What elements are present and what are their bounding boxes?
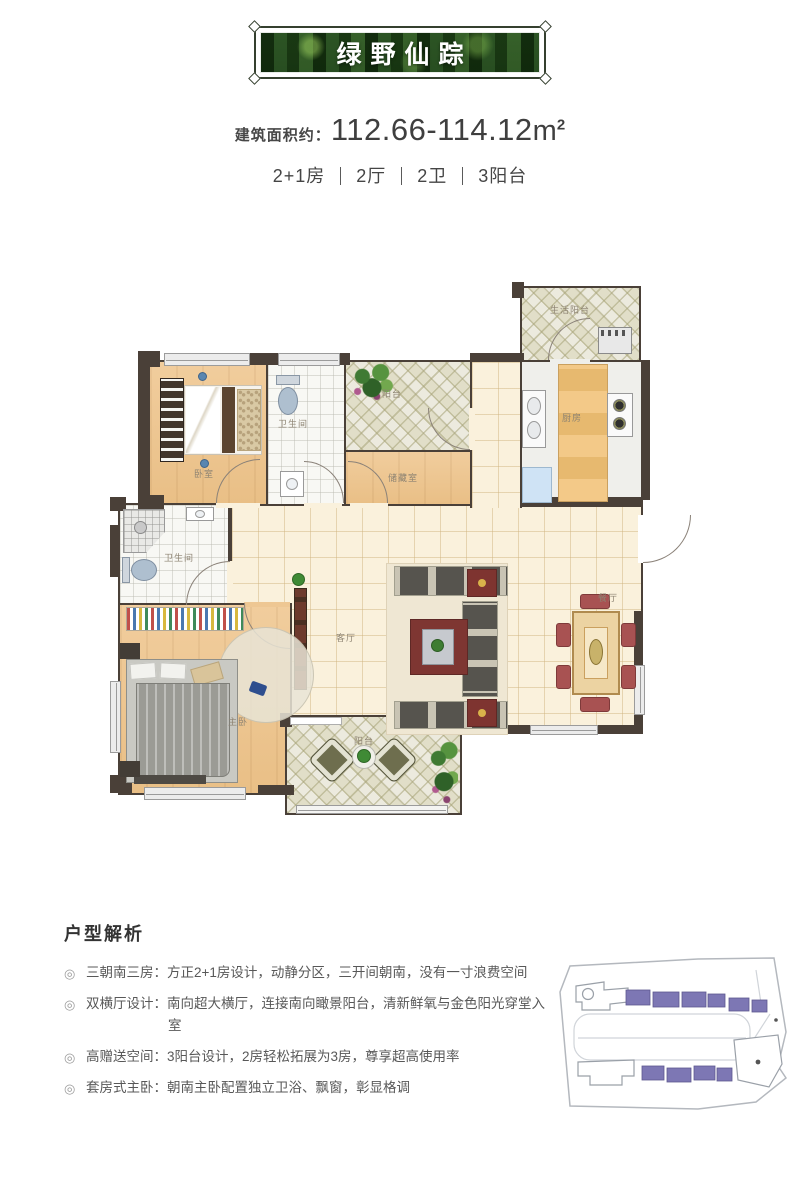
room-label-storage: 储藏室 bbox=[388, 471, 418, 484]
built-area-unit: m2 bbox=[533, 115, 566, 148]
kitchen-counter bbox=[558, 364, 608, 502]
spec-halls: 2厅 bbox=[340, 167, 401, 185]
banner-corner-ornament bbox=[248, 20, 261, 33]
spec-balconies: 3阳台 bbox=[462, 167, 542, 185]
dining-centerpiece bbox=[589, 639, 603, 665]
built-area-line: 建筑面积约： 112.66-114.12 m2 bbox=[0, 112, 800, 148]
wall-segment bbox=[258, 785, 294, 795]
stove-burner bbox=[613, 417, 626, 430]
room-label-balcony-top: 阳台 bbox=[382, 387, 402, 400]
room-label-kitchen: 厨房 bbox=[562, 411, 582, 424]
bed-headboard bbox=[222, 387, 235, 453]
bed-drape bbox=[136, 683, 230, 777]
sliding-door bbox=[290, 717, 342, 725]
analysis-item: ◎ 双横厅设计：南向超大横厅，连接南向瞰景阳台，清新鲜氧与金色阳光穿堂入室 bbox=[64, 993, 546, 1037]
table-plant bbox=[431, 639, 444, 652]
room-corridor bbox=[470, 360, 522, 508]
toilet-icon bbox=[122, 557, 130, 583]
door-gap bbox=[350, 503, 388, 508]
project-title: 绿野仙踪 bbox=[327, 35, 472, 71]
site-boundary bbox=[560, 958, 786, 1109]
site-map bbox=[548, 950, 793, 1122]
analysis-text: 套房式主卧：朝南主卧配置独立卫浴、飘窗，彰显格调 bbox=[86, 1077, 546, 1099]
wall-segment bbox=[110, 525, 120, 577]
bed-duvet bbox=[186, 387, 220, 453]
window bbox=[530, 725, 598, 735]
door-gap bbox=[304, 503, 342, 508]
room-label-dining: 餐厅 bbox=[598, 591, 618, 604]
spec-rooms: 2+1房 bbox=[258, 167, 341, 185]
door-arc-entry bbox=[643, 515, 691, 563]
wall-segment bbox=[138, 495, 164, 509]
dining-chair bbox=[556, 623, 571, 647]
sink-bowl bbox=[527, 421, 541, 439]
title-banner: 绿野仙踪 bbox=[254, 26, 546, 79]
built-area-value: 112.66-114.12 bbox=[331, 112, 533, 148]
bullet-icon: ◎ bbox=[64, 962, 86, 984]
side-table bbox=[467, 569, 497, 597]
washer-dials bbox=[601, 330, 629, 336]
wardrobe bbox=[160, 378, 184, 462]
analysis-list: ◎ 三朝南三房：方正2+1房设计，动静分区，三开间朝南，没有一寸浪费空间 ◎ 双… bbox=[64, 962, 546, 1099]
window bbox=[164, 353, 250, 366]
bedside-lamp bbox=[198, 372, 207, 381]
fridge-icon bbox=[522, 467, 552, 503]
sink-bowl bbox=[527, 397, 541, 415]
wall-segment bbox=[641, 360, 650, 500]
analysis-title: 户型解析 bbox=[64, 920, 546, 946]
sink-basin bbox=[195, 510, 205, 518]
nightstand bbox=[120, 643, 140, 659]
built-area-label: 建筑面积约： bbox=[235, 124, 331, 145]
room-label-bedroom2: 卧室 bbox=[194, 467, 214, 480]
room-label-living: 客厅 bbox=[336, 631, 356, 644]
dining-chair bbox=[556, 665, 571, 689]
sink-basin bbox=[286, 478, 298, 490]
banner-corner-ornament bbox=[539, 72, 552, 85]
bed-blanket bbox=[237, 389, 261, 451]
pillow bbox=[160, 662, 187, 679]
analysis-section: 户型解析 ◎ 三朝南三房：方正2+1房设计，动静分区，三开间朝南，没有一寸浪费空… bbox=[64, 920, 546, 1108]
room-label-bath2: 卫生间 bbox=[278, 417, 308, 430]
dining-chair bbox=[621, 665, 636, 689]
window bbox=[278, 353, 340, 366]
forest-photo-background: 绿野仙踪 bbox=[260, 32, 540, 73]
wall-segment bbox=[250, 353, 278, 365]
side-table bbox=[467, 699, 497, 727]
banner-corner-ornament bbox=[539, 20, 552, 33]
shower-drain bbox=[134, 521, 147, 534]
layout-specs-line: 2+1房2厅2卫3阳台 bbox=[0, 166, 800, 187]
dining-chair bbox=[580, 697, 610, 712]
toilet-icon bbox=[131, 559, 157, 581]
window bbox=[110, 681, 121, 753]
wall-segment bbox=[512, 282, 524, 298]
window bbox=[144, 787, 246, 800]
plant-pot bbox=[292, 573, 305, 586]
pillow bbox=[129, 662, 156, 680]
site-map-svg bbox=[548, 950, 793, 1122]
wardrobe-hangers bbox=[126, 607, 244, 631]
bed-bench bbox=[134, 775, 206, 784]
wall-segment bbox=[110, 497, 126, 511]
room-label-life-balcony: 生活阳台 bbox=[550, 303, 590, 316]
toilet-icon bbox=[276, 375, 300, 385]
spec-baths: 2卫 bbox=[401, 167, 462, 185]
room-label-balcony-south: 阳台 bbox=[354, 734, 374, 747]
room-label-master-bath: 卫生间 bbox=[164, 551, 194, 564]
plants bbox=[430, 731, 458, 809]
analysis-text: 双横厅设计：南向超大横厅，连接南向瞰景阳台，清新鲜氧与金色阳光穿堂入室 bbox=[86, 993, 546, 1037]
analysis-text: 高赠送空间：3阳台设计，2房轻松拓展为3房，尊享超高使用率 bbox=[86, 1046, 546, 1068]
bullet-icon: ◎ bbox=[64, 1077, 86, 1099]
analysis-text: 三朝南三房：方正2+1房设计，动静分区，三开间朝南，没有一寸浪费空间 bbox=[86, 962, 546, 984]
balcony-railing bbox=[296, 805, 448, 814]
room-label-master-bedroom: 主卧 bbox=[228, 715, 248, 728]
flyer-page: 绿野仙踪 建筑面积约： 112.66-114.12 m2 2+1房2厅2卫3阳台 bbox=[0, 0, 800, 1200]
wall-segment bbox=[598, 725, 643, 734]
door-gap bbox=[216, 503, 260, 508]
wall-segment bbox=[470, 353, 524, 362]
stove-burner bbox=[613, 399, 626, 412]
analysis-item: ◎ 高赠送空间：3阳台设计，2房轻松拓展为3房，尊享超高使用率 bbox=[64, 1046, 546, 1068]
analysis-item: ◎ 套房式主卧：朝南主卧配置独立卫浴、飘窗，彰显格调 bbox=[64, 1077, 546, 1099]
table-plant bbox=[357, 749, 371, 763]
banner-corner-ornament bbox=[248, 72, 261, 85]
floor-plan: 卧室 卫生间 阳台 储藏室 生活阳台 厨房 客厅 餐厅 卫生间 主卧 阳台 bbox=[110, 275, 692, 827]
analysis-item: ◎ 三朝南三房：方正2+1房设计，动静分区，三开间朝南，没有一寸浪费空间 bbox=[64, 962, 546, 984]
nightstand bbox=[120, 761, 140, 777]
dining-chair bbox=[621, 623, 636, 647]
wall-segment bbox=[138, 363, 150, 507]
bullet-icon: ◎ bbox=[64, 993, 86, 1037]
bullet-icon: ◎ bbox=[64, 1046, 86, 1068]
toilet-icon bbox=[278, 387, 298, 415]
